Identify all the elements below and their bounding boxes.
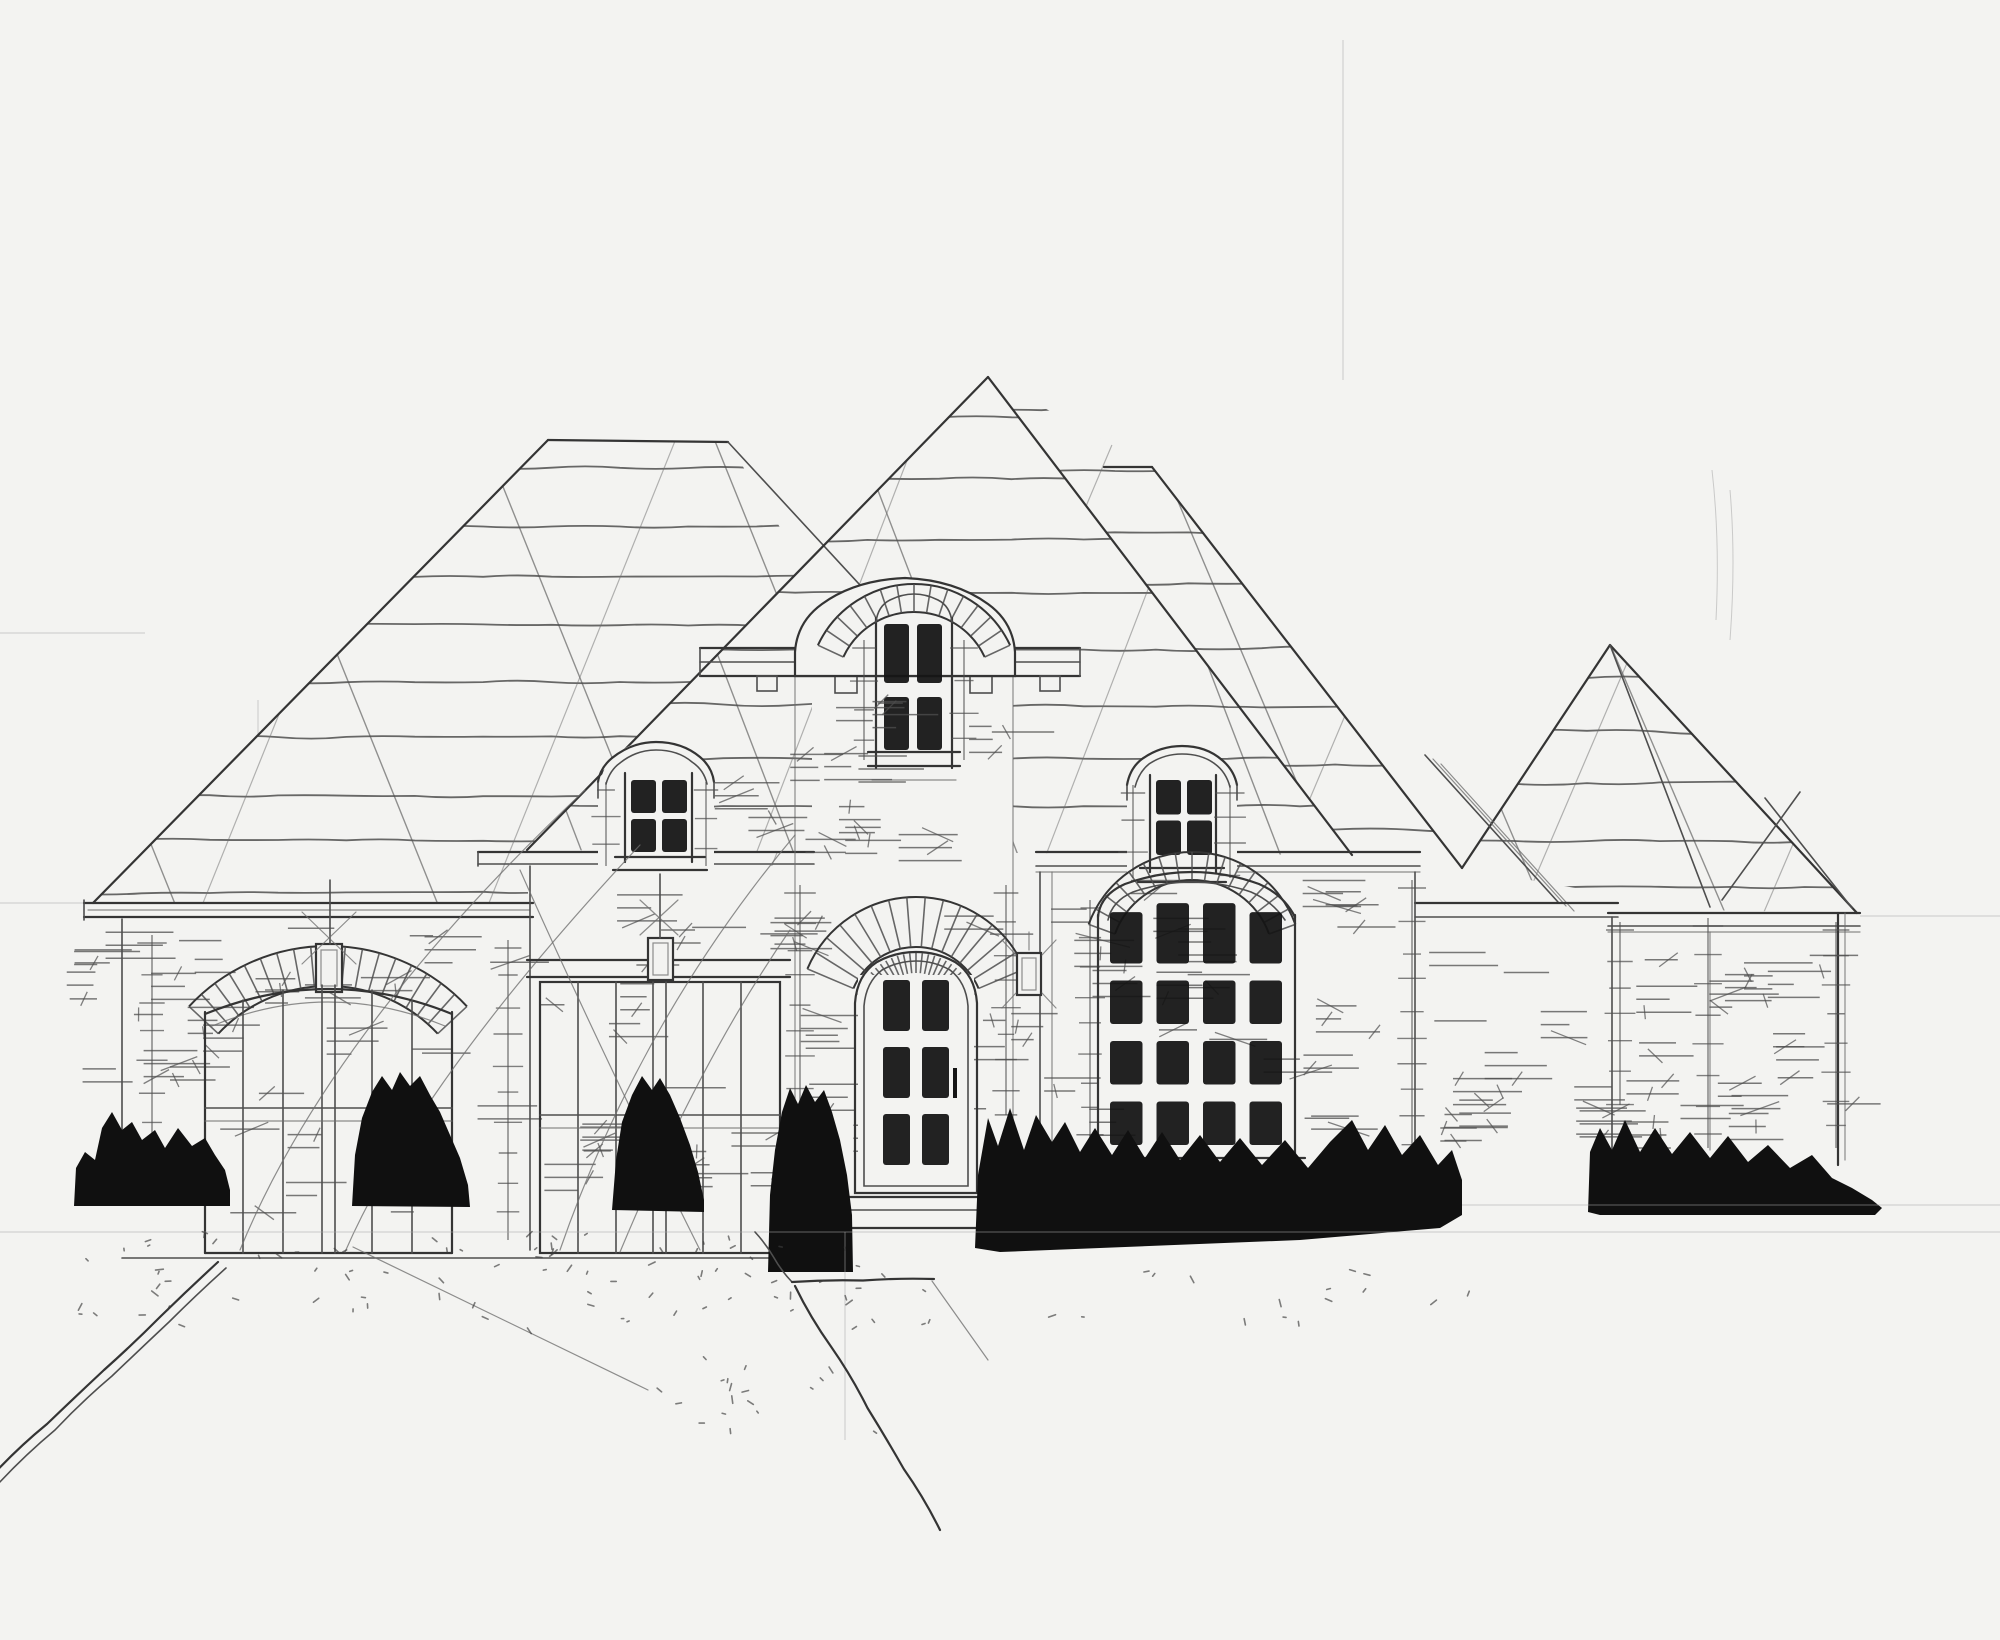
elevation-drawing: Hand-drawn front elevation sketch of a F… xyxy=(0,0,2000,1640)
sketch-page: Hand-drawn front elevation sketch of a F… xyxy=(0,0,2000,1640)
entry-door-handle xyxy=(953,1068,957,1098)
left-dormer xyxy=(591,740,718,872)
left-garage-keystone xyxy=(316,944,342,992)
left-wing-eave xyxy=(84,900,533,920)
center-garage-lantern xyxy=(648,938,673,980)
